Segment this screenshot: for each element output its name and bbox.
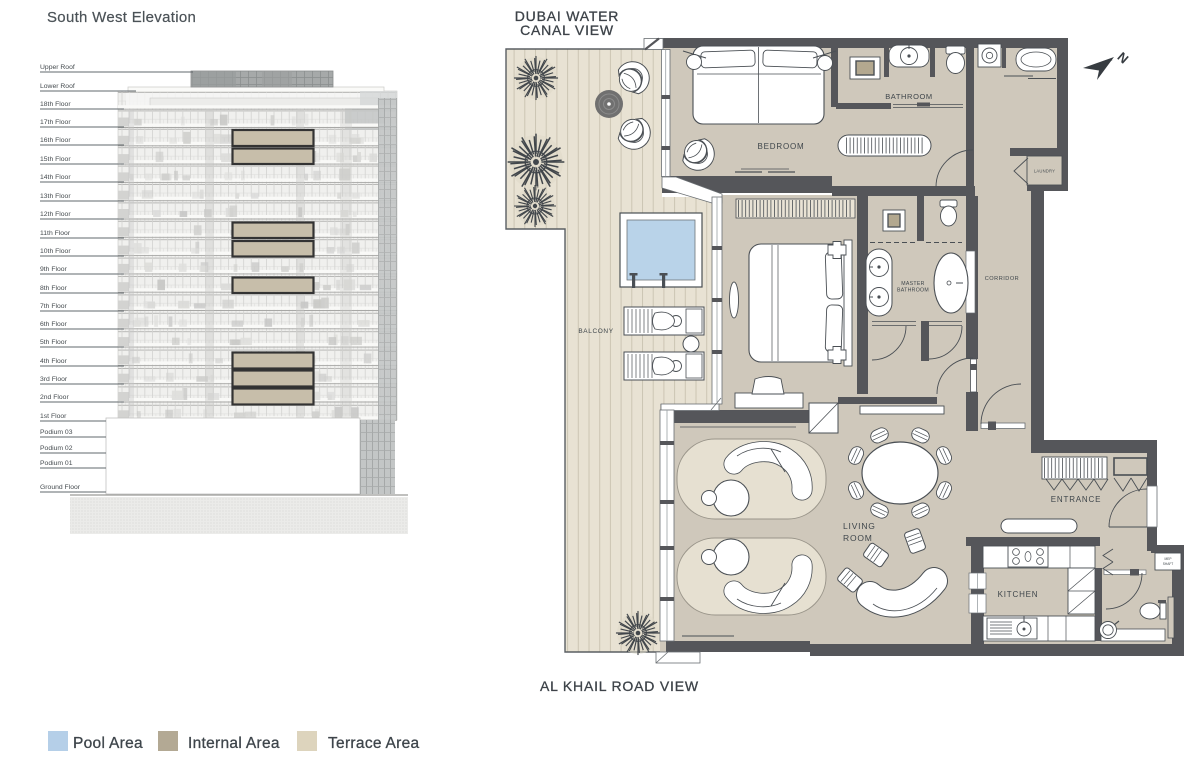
svg-text:Podium 03: Podium 03 [40, 429, 73, 436]
svg-text:Pool Area: Pool Area [73, 735, 143, 752]
svg-text:Podium 01: Podium 01 [40, 460, 73, 467]
svg-text:AL KHAIL ROAD VIEW: AL KHAIL ROAD VIEW [540, 678, 699, 694]
svg-text:14th Floor: 14th Floor [40, 174, 71, 181]
svg-text:18th Floor: 18th Floor [40, 101, 71, 108]
svg-text:LAUNDRY: LAUNDRY [1034, 169, 1055, 174]
svg-text:13th Floor: 13th Floor [40, 193, 71, 200]
svg-text:3rd Floor: 3rd Floor [40, 376, 68, 383]
svg-text:12th Floor: 12th Floor [40, 211, 71, 218]
svg-text:Terrace Area: Terrace Area [328, 735, 420, 752]
svg-text:10th Floor: 10th Floor [40, 248, 71, 255]
svg-text:6th Floor: 6th Floor [40, 321, 68, 328]
svg-text:11th Floor: 11th Floor [40, 230, 71, 237]
svg-text:Ground Floor: Ground Floor [40, 484, 81, 491]
svg-text:17th Floor: 17th Floor [40, 119, 71, 126]
svg-text:16th Floor: 16th Floor [40, 137, 71, 144]
svg-text:BEDROOM: BEDROOM [758, 142, 805, 151]
svg-text:Upper Roof: Upper Roof [40, 64, 75, 71]
svg-text:7th Floor: 7th Floor [40, 303, 68, 310]
svg-text:LIVING: LIVING [843, 521, 876, 531]
svg-text:BATHROOM: BATHROOM [885, 92, 933, 101]
svg-text:KITCHEN: KITCHEN [998, 590, 1039, 599]
svg-text:5th Floor: 5th Floor [40, 339, 68, 346]
svg-text:MEP: MEP [1165, 557, 1172, 561]
svg-text:Lower Roof: Lower Roof [40, 83, 75, 90]
svg-text:1st Floor: 1st Floor [40, 413, 67, 420]
svg-text:South West Elevation: South West Elevation [47, 9, 196, 26]
svg-text:ROOM: ROOM [843, 533, 873, 543]
svg-text:9th Floor: 9th Floor [40, 266, 68, 273]
svg-text:8th Floor: 8th Floor [40, 285, 68, 292]
svg-text:2nd Floor: 2nd Floor [40, 394, 69, 401]
svg-text:SHAFT: SHAFT [1163, 562, 1174, 566]
svg-text:BATHROOM: BATHROOM [897, 288, 929, 294]
svg-text:4th Floor: 4th Floor [40, 358, 68, 365]
svg-text:CANAL VIEW: CANAL VIEW [520, 22, 614, 38]
svg-text:Internal Area: Internal Area [188, 735, 280, 752]
svg-text:ENTRANCE: ENTRANCE [1051, 495, 1101, 504]
svg-text:BALCONY: BALCONY [578, 328, 613, 335]
svg-text:15th Floor: 15th Floor [40, 156, 71, 163]
svg-text:Podium 02: Podium 02 [40, 445, 73, 452]
svg-text:CORRIDOR: CORRIDOR [985, 276, 1019, 282]
svg-text:MASTER: MASTER [901, 281, 924, 287]
